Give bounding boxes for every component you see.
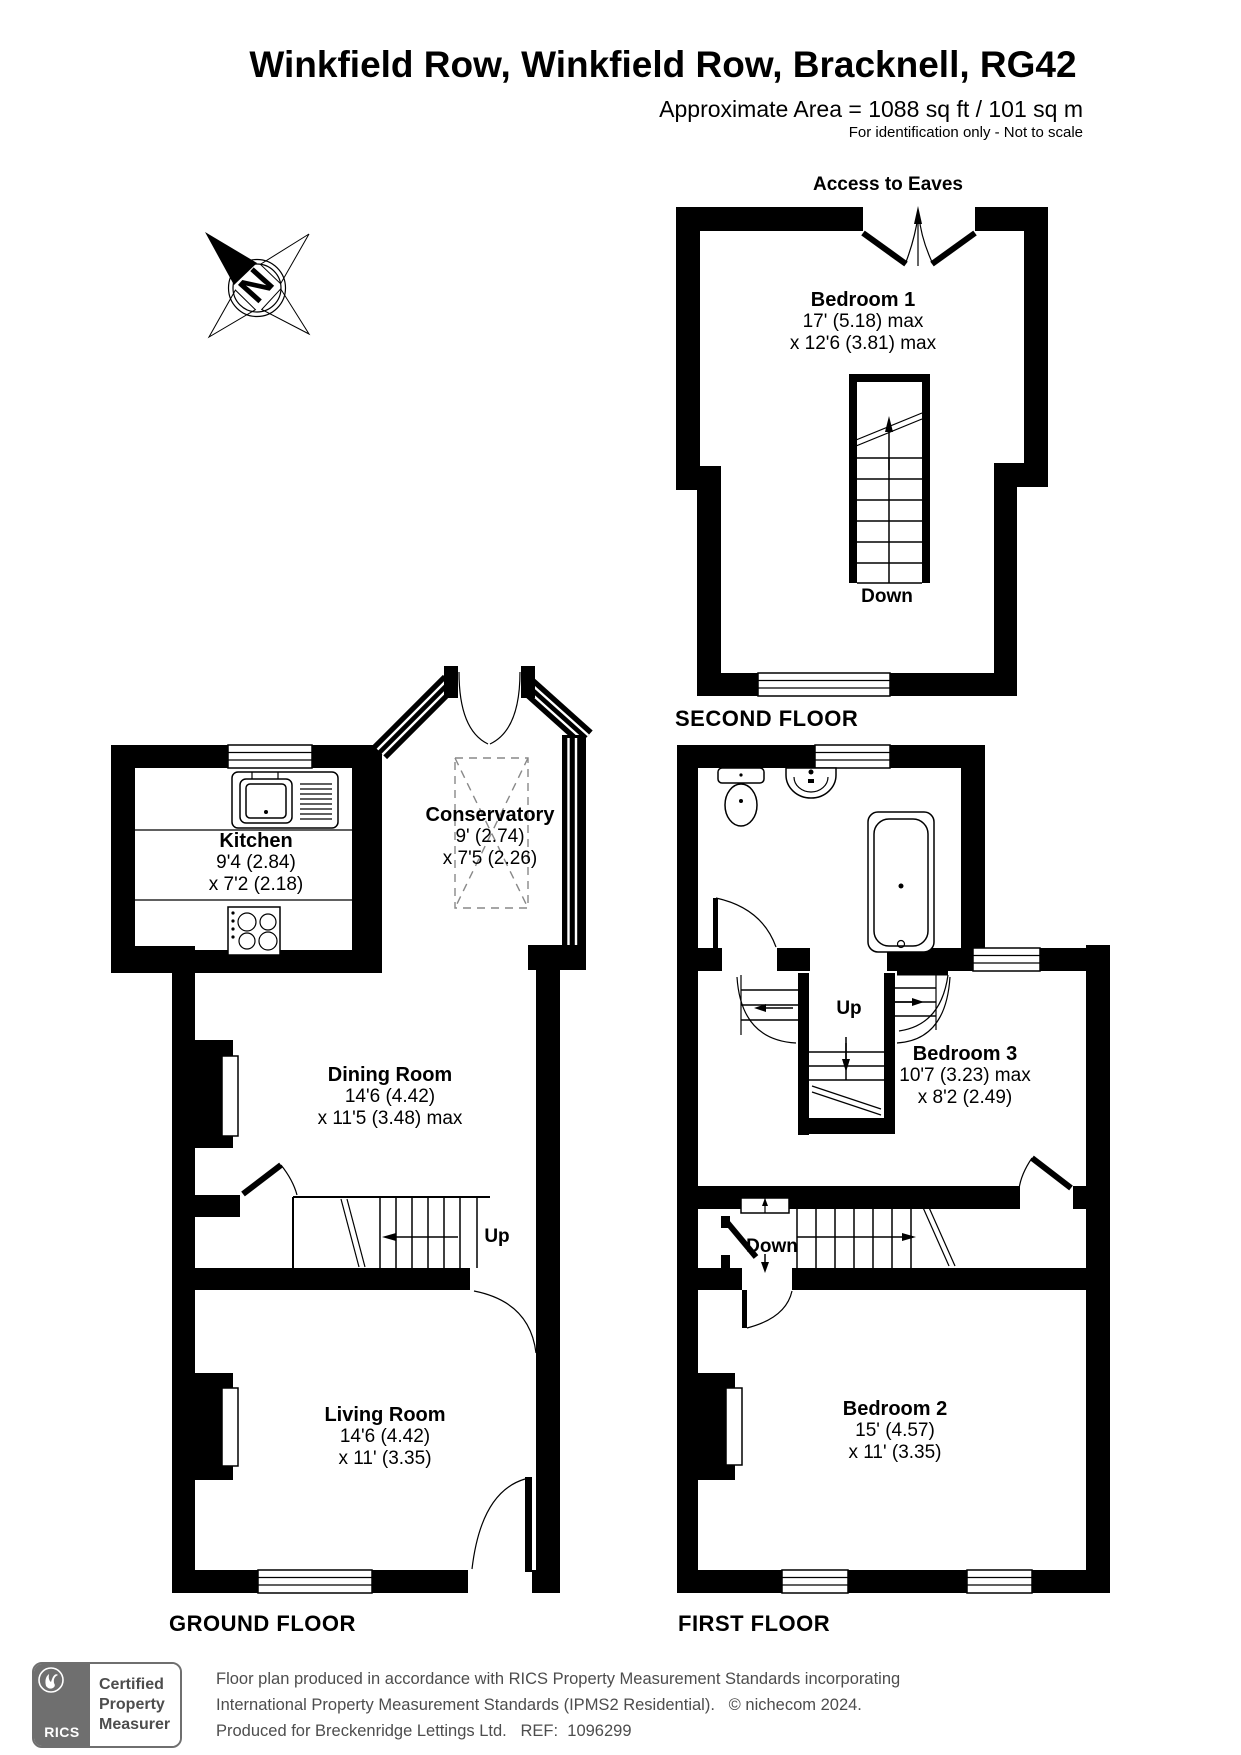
bedroom3-door-bottom [1019, 1158, 1071, 1189]
living-room-label: Living Room 14'6 (4.42) x 11' (3.35) [324, 1404, 445, 1470]
conservatory-label: Conservatory 9' (2.74) x 7'5 (2.26) [426, 804, 555, 870]
ground-floor-stairs [293, 1197, 490, 1268]
kitchen-window [228, 745, 312, 768]
bathroom-window [815, 745, 890, 768]
living-room-door [474, 1291, 536, 1353]
badge-line1: Certified [99, 1675, 180, 1695]
living-chimney-breast [195, 1373, 238, 1480]
bedroom3-name: Bedroom 3 [899, 1043, 1030, 1065]
first-floor-label: FIRST FLOOR [678, 1611, 830, 1637]
bedroom2-window-right [967, 1570, 1032, 1593]
eaves-access-door [863, 206, 975, 266]
kitchen-sink-icon [232, 772, 338, 828]
kitchen-hob-icon [228, 907, 280, 955]
certified-property-measurer: Certified Property Measurer [90, 1664, 180, 1746]
second-floor-plan [676, 206, 1048, 696]
badge-line2: Property [99, 1695, 180, 1715]
living-room-dim1: 14'6 (4.42) [340, 1426, 430, 1447]
kitchen-dim1: 9'4 (2.84) [216, 852, 296, 873]
second-floor-down-label: Down [861, 586, 913, 608]
living-room-dim2: x 11' (3.35) [338, 1448, 431, 1469]
bedroom3-dim1: 10'7 (3.23) max [899, 1065, 1030, 1086]
bedroom1-label: Bedroom 1 17' (5.18) max x 12'6 (3.81) m… [790, 289, 936, 355]
ground-floor-up-label: Up [484, 1226, 509, 1248]
bedroom3-dim2: x 8'2 (2.49) [918, 1087, 1012, 1108]
second-floor-stairs [849, 374, 930, 583]
rics-certified-badge: RICS Certified Property Measurer [32, 1662, 182, 1748]
basin-icon [786, 768, 836, 798]
kitchen-name: Kitchen [209, 830, 303, 852]
dining-room-label: Dining Room 14'6 (4.42) x 11'5 (3.48) ma… [318, 1064, 463, 1130]
floorplan-page: .w{fill:#000;} .win{fill:#fff;stroke:#00… [0, 0, 1241, 1755]
bedroom1-dim2: x 12'6 (3.81) max [790, 333, 936, 354]
first-floor-down-label: Down [746, 1236, 798, 1258]
dining-room-dim1: 14'6 (4.42) [345, 1086, 435, 1107]
bedroom2-dim2: x 11' (3.35) [848, 1442, 941, 1463]
conservatory-dim1: 9' (2.74) [455, 826, 524, 847]
bedroom3-label: Bedroom 3 10'7 (3.23) max x 8'2 (2.49) [899, 1043, 1030, 1109]
ground-floor-label: GROUND FLOOR [169, 1611, 356, 1637]
rics-lion-icon [34, 1664, 68, 1702]
rics-wordmark: RICS [44, 1724, 79, 1740]
floorplan-drawing: .w{fill:#000;} .win{fill:#fff;stroke:#00… [0, 0, 1241, 1755]
front-door [472, 1477, 532, 1572]
bath-icon [868, 812, 934, 952]
approx-area-text: Approximate Area = 1088 sq ft / 101 sq m [659, 96, 1083, 123]
disclaimer-line1: Floor plan produced in accordance with R… [216, 1666, 900, 1692]
disclaimer-line2: International Property Measurement Stand… [216, 1692, 862, 1718]
toilet-icon [718, 768, 764, 826]
kitchen-label: Kitchen 9'4 (2.84) x 7'2 (2.18) [209, 830, 303, 896]
dining-room-door [243, 1165, 297, 1195]
rics-logo: RICS [34, 1664, 90, 1746]
second-floor-walls [676, 207, 1048, 696]
page-title: Winkfield Row, Winkfield Row, Bracknell,… [249, 44, 1076, 86]
living-room-window [258, 1570, 372, 1593]
living-room-name: Living Room [324, 1404, 445, 1426]
second-floor-window [758, 673, 890, 696]
bedroom1-name: Bedroom 1 [790, 289, 936, 311]
bedroom2-door [742, 1290, 792, 1328]
bedroom2-label: Bedroom 2 15' (4.57) x 11' (3.35) [843, 1398, 947, 1464]
first-floor-up-label: Up [836, 998, 861, 1020]
badge-line3: Measurer [99, 1715, 180, 1735]
dining-chimney-breast [195, 1040, 238, 1148]
bedroom3-window [973, 948, 1040, 971]
access-to-eaves-label: Access to Eaves [813, 174, 963, 196]
bedroom2-dim1: 15' (4.57) [855, 1420, 935, 1441]
first-floor-stairwell [798, 1037, 895, 1135]
conservatory-dim2: x 7'5 (2.26) [443, 848, 537, 869]
kitchen-dim2: x 7'2 (2.18) [209, 874, 303, 895]
bedroom2-chimney-breast [698, 1373, 742, 1480]
second-floor-label: SECOND FLOOR [675, 706, 858, 732]
bedroom2-name: Bedroom 2 [843, 1398, 947, 1420]
bedroom1-dim1: 17' (5.18) max [803, 311, 924, 332]
scale-note: For identification only - Not to scale [849, 124, 1083, 141]
dining-room-name: Dining Room [318, 1064, 463, 1086]
first-floor-plan [677, 745, 1110, 1593]
bedroom2-window-left [782, 1570, 848, 1593]
bathroom-door [713, 898, 776, 950]
conservatory-name: Conservatory [426, 804, 555, 826]
disclaimer-line3: Produced for Breckenridge Lettings Ltd. … [216, 1718, 632, 1744]
dining-room-dim2: x 11'5 (3.48) max [318, 1108, 463, 1129]
